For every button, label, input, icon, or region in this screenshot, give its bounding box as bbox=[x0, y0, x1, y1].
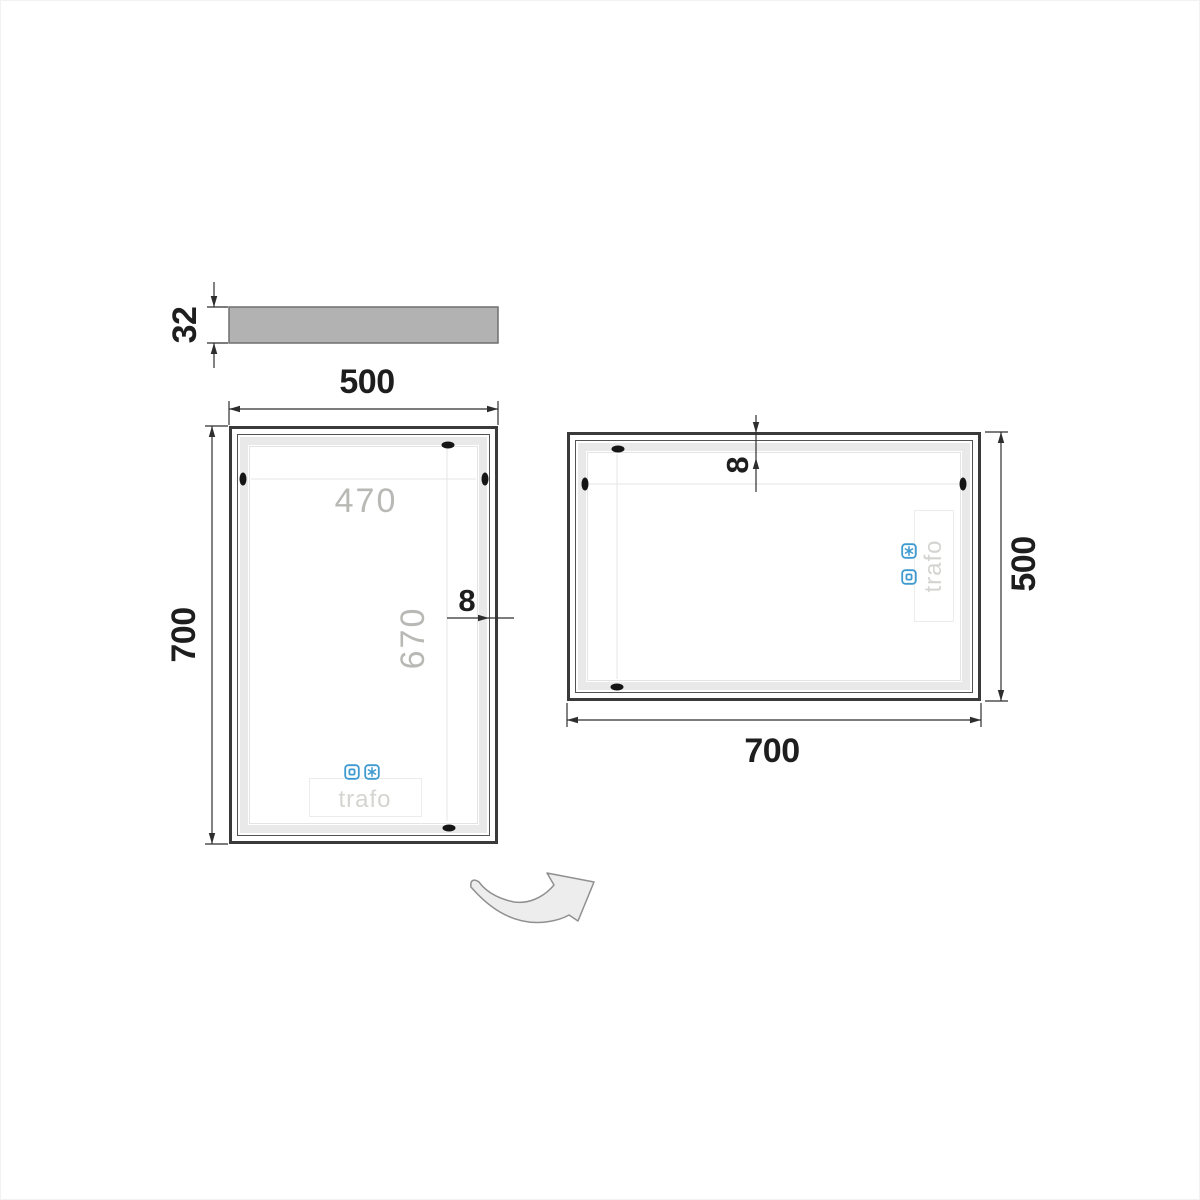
profile-thickness-label: 32 bbox=[165, 265, 205, 385]
defogger-icon bbox=[901, 543, 917, 559]
front-height-label: 700 bbox=[164, 575, 204, 695]
front-band-label: 8 bbox=[447, 583, 487, 619]
arrowhead bbox=[209, 426, 215, 437]
profile-bar bbox=[229, 307, 498, 343]
front-trafo-label: trafo bbox=[315, 785, 415, 815]
arrowhead bbox=[209, 833, 215, 844]
touch-sensor-icon bbox=[901, 569, 917, 585]
profile-thickness-dimension bbox=[207, 282, 228, 368]
defogger-icon bbox=[364, 764, 380, 780]
arrowhead bbox=[211, 343, 218, 354]
front-width-label: 500 bbox=[307, 362, 427, 402]
front-inner-width-label: 470 bbox=[296, 479, 436, 523]
rotated-width-dimension bbox=[567, 703, 981, 727]
arrowhead bbox=[211, 296, 218, 307]
arrowhead bbox=[998, 432, 1004, 443]
rotated-width-label: 700 bbox=[712, 731, 832, 771]
rotated-height-label: 500 bbox=[1004, 504, 1044, 624]
front-height-dimension bbox=[205, 426, 228, 844]
arrowhead bbox=[567, 717, 578, 723]
arrowhead bbox=[229, 406, 240, 412]
front-inner-height-label: 670 bbox=[393, 578, 433, 698]
arrowhead bbox=[998, 690, 1004, 701]
rotation-arrow-icon bbox=[471, 873, 594, 923]
arrowhead bbox=[970, 717, 981, 723]
arrowhead bbox=[487, 406, 498, 412]
front-width-dimension bbox=[229, 401, 498, 425]
touch-sensor-icon bbox=[344, 764, 360, 780]
dimension-drawing-canvas: 32 500 700 470 670 8 trafo 8 500 700 tra… bbox=[0, 0, 1200, 1200]
rotated-mirror-sandblast-line bbox=[587, 452, 961, 681]
rotated-trafo-label: trafo bbox=[919, 516, 949, 616]
rotated-band-label: 8 bbox=[720, 445, 756, 485]
